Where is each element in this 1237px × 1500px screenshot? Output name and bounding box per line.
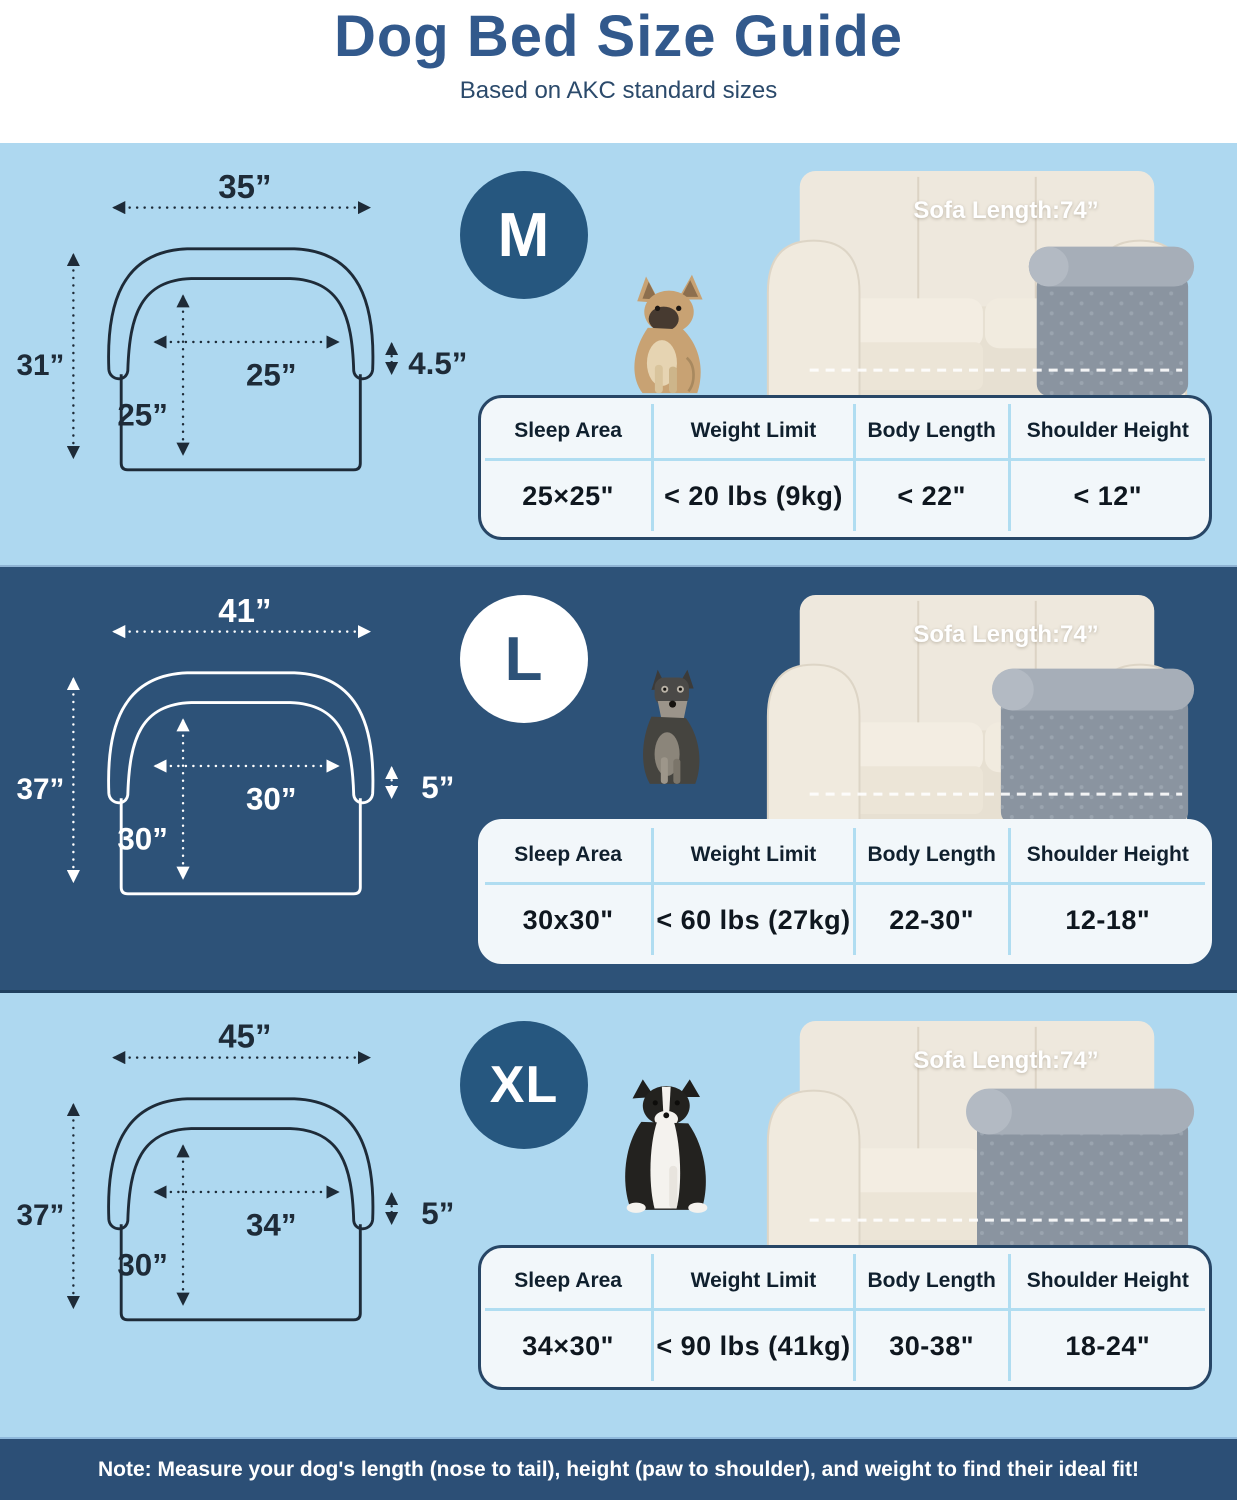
- page-title: Dog Bed Size Guide: [0, 6, 1237, 68]
- column-header-shoulder-height: Shoulder Height: [1011, 1254, 1205, 1311]
- weight-limit-value: < 20 lbs (9kg): [654, 461, 856, 531]
- note-bar: Note: Measure your dog's length (nose to…: [0, 1437, 1237, 1500]
- sofa-illustration-m: Sofa Length:74”: [738, 159, 1216, 423]
- size-badge-label: XL: [490, 1055, 558, 1115]
- shoulder-height-value: 12-18": [1011, 885, 1205, 955]
- dimension-label-height: 31”: [16, 349, 64, 382]
- dimension-label-side-height: 5”: [421, 1196, 454, 1231]
- spec-table-xl: Sleep Area Weight Limit Body Length Shou…: [478, 1245, 1212, 1390]
- size-section-m: 35” 31” 25” 25” 4.5” M S: [0, 143, 1237, 565]
- schnauzer-svg: [628, 665, 714, 790]
- bed-dimension-diagram-m: 35” 31” 25” 25” 4.5”: [14, 173, 484, 487]
- column-header-shoulder-height: Shoulder Height: [1011, 404, 1205, 461]
- bed-dimension-diagram-l: 41” 37” 30” 30” 5”: [14, 597, 484, 911]
- dimension-label-width: 41”: [218, 597, 271, 629]
- size-badge-xl: XL: [460, 1021, 588, 1149]
- shoulder-height-value: 18-24": [1011, 1311, 1205, 1381]
- dimension-label-inner-width: 30”: [246, 782, 297, 817]
- dimension-label-inner-width: 25”: [246, 358, 297, 393]
- size-badge-m: M: [460, 171, 588, 299]
- schnauzer-image: [628, 665, 714, 795]
- sofa-length-label: Sofa Length:74”: [866, 1047, 1146, 1075]
- dimension-label-inner-width: 34”: [246, 1208, 297, 1243]
- column-header-sleep-area: Sleep Area: [485, 828, 654, 885]
- spec-table-l: Sleep Area Weight Limit Body Length Shou…: [478, 819, 1212, 964]
- sleep-area-value: 25×25": [485, 461, 654, 531]
- sofa-illustration-l: Sofa Length:74”: [738, 583, 1216, 847]
- column-header-body-length: Body Length: [856, 828, 1011, 885]
- border-collie-image: [612, 1075, 722, 1219]
- french-bulldog-image: [616, 273, 722, 402]
- size-badge-l: L: [460, 595, 588, 723]
- column-header-body-length: Body Length: [856, 404, 1011, 461]
- bed-diagram-svg: 41” 37” 30” 30” 5”: [14, 597, 484, 906]
- bed-diagram-svg: 35” 31” 25” 25” 4.5”: [14, 173, 484, 482]
- column-header-weight-limit: Weight Limit: [654, 828, 856, 885]
- sofa-length-label: Sofa Length:74”: [866, 621, 1146, 649]
- dimension-label-inner-depth: 30”: [117, 821, 168, 856]
- bed-dimension-diagram-xl: 45” 37” 34” 30” 5”: [14, 1023, 484, 1337]
- column-header-weight-limit: Weight Limit: [654, 1254, 856, 1311]
- column-header-weight-limit: Weight Limit: [654, 404, 856, 461]
- sleep-area-value: 30x30": [485, 885, 654, 955]
- border-collie-svg: [612, 1075, 722, 1214]
- bed-diagram-svg: 45” 37” 34” 30” 5”: [14, 1023, 484, 1332]
- body-length-value: 30-38": [856, 1311, 1011, 1381]
- spec-table-m: Sleep Area Weight Limit Body Length Shou…: [478, 395, 1212, 540]
- dimension-label-height: 37”: [16, 1199, 64, 1232]
- size-section-l: 41” 37” 30” 30” 5” L Sof: [0, 565, 1237, 993]
- size-badge-label: M: [498, 200, 551, 271]
- body-length-value: < 22": [856, 461, 1011, 531]
- dimension-label-width: 45”: [218, 1023, 271, 1055]
- size-section-xl: 45” 37” 34” 30” 5” XL: [0, 993, 1237, 1437]
- column-header-shoulder-height: Shoulder Height: [1011, 828, 1205, 885]
- french-bulldog-svg: [616, 273, 722, 397]
- weight-limit-value: < 90 lbs (41kg): [654, 1311, 856, 1381]
- dimension-label-inner-depth: 25”: [117, 397, 168, 432]
- column-header-body-length: Body Length: [856, 1254, 1011, 1311]
- body-length-value: 22-30": [856, 885, 1011, 955]
- dimension-label-height: 37”: [16, 773, 64, 806]
- dimension-label-side-height: 4.5”: [408, 346, 467, 381]
- dog-bed-size-guide-poster: Dog Bed Size Guide Based on AKC standard…: [0, 0, 1237, 1500]
- shoulder-height-value: < 12": [1011, 461, 1205, 531]
- header: Dog Bed Size Guide Based on AKC standard…: [0, 0, 1237, 143]
- dimension-label-inner-depth: 30”: [117, 1247, 168, 1282]
- column-header-sleep-area: Sleep Area: [485, 1254, 654, 1311]
- column-header-sleep-area: Sleep Area: [485, 404, 654, 461]
- dimension-label-width: 35”: [218, 173, 271, 205]
- page-subtitle: Based on AKC standard sizes: [0, 77, 1237, 105]
- dimension-label-side-height: 5”: [421, 770, 454, 805]
- weight-limit-value: < 60 lbs (27kg): [654, 885, 856, 955]
- sleep-area-value: 34×30": [485, 1311, 654, 1381]
- sofa-length-label: Sofa Length:74”: [866, 197, 1146, 225]
- note-text: Note: Measure your dog's length (nose to…: [98, 1458, 1139, 1482]
- sofa-illustration-xl: Sofa Length:74”: [738, 1009, 1216, 1273]
- size-badge-label: L: [505, 624, 544, 695]
